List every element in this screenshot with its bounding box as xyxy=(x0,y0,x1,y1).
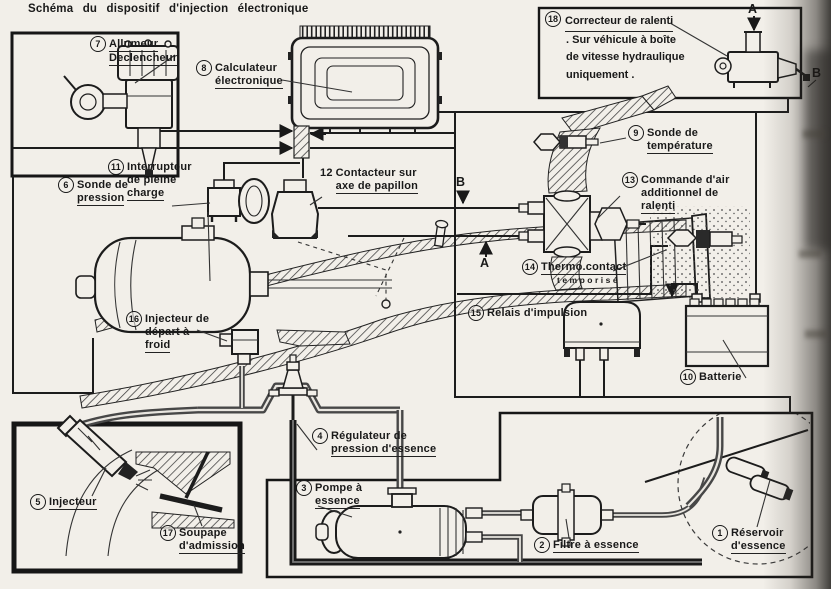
label-distributor: 7 AllumeurDeclencheur xyxy=(90,38,177,66)
port-letter-b: B xyxy=(456,175,465,189)
label-fuel-pump: 3 Pompe àessence xyxy=(296,482,362,509)
inset-port-letter-a: A xyxy=(748,2,757,16)
thermo-time-switch-drawing xyxy=(650,206,750,298)
scanned-schematic-page: Schéma du dispositif d'injection électro… xyxy=(0,0,831,589)
label-ecu: 8 Calculateurélectronique xyxy=(196,62,283,89)
battery-drawing xyxy=(686,294,768,366)
label-throttle-switch: 12 Contacteur suraxe de papillon xyxy=(320,167,418,194)
label-pressure-sensor: 6 Sonde depression xyxy=(58,179,128,206)
diagram-canvas xyxy=(0,0,831,589)
label-auxiliary-air-valve: 13 Commande d'airadditionnel deralenti xyxy=(622,174,730,214)
label-number: 18 xyxy=(545,11,561,27)
port-letter-a: A xyxy=(480,256,489,270)
page-title: Schéma du dispositif d'injection électro… xyxy=(28,3,308,15)
label-injector: 5 Injecteur xyxy=(30,496,97,510)
label-fuel-pressure-regulator: 4 Régulateur depression d'essence xyxy=(312,430,436,457)
ecu-connector xyxy=(294,126,309,158)
throttle-switch-drawing xyxy=(272,180,386,300)
label-battery: 10 Batterie xyxy=(680,371,742,385)
idle-corrector-drawing xyxy=(715,32,810,88)
label-thermo-time-switch: 14 Thermo.contacttemporisé xyxy=(522,261,626,287)
label-cold-start-injector: 16 Injecteur dedépart àfroid xyxy=(126,313,209,353)
label-temperature-sensor: 9 Sonde detempérature xyxy=(628,127,713,154)
fuel-filter-drawing xyxy=(521,484,613,546)
label-fuel-tank: 1 Réservoird'essence xyxy=(712,527,786,554)
label-fuel-filter: 2 Filtre à essence xyxy=(534,539,639,553)
label-idle-corrector: 18 Correcteur de ralenti . Sur véhicule … xyxy=(545,13,685,84)
label-pulse-relay: 15 Relais d'impulsion xyxy=(468,307,587,321)
full-load-switch-drawing xyxy=(208,179,269,223)
inset-port-letter-b: B xyxy=(812,66,821,80)
ecu-drawing xyxy=(288,26,442,158)
label-intake-valve: 17 Soupaped'admission xyxy=(160,527,245,554)
